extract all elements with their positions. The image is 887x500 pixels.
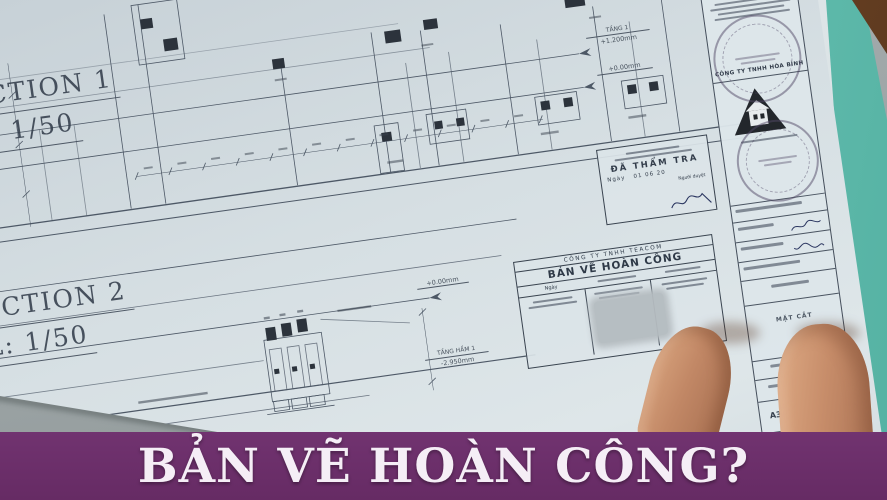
signature-icon <box>791 237 826 255</box>
caption-banner: BẢN VẼ HOÀN CÔNG? <box>0 432 887 500</box>
verification-stamp: ĐÃ THẨM TRA Ngày 01 06 20 Người duyệt <box>596 134 717 225</box>
title-block-col1 <box>519 289 594 364</box>
signature-icon <box>668 187 714 213</box>
caption-text: BẢN VẼ HOÀN CÔNG? <box>138 439 749 494</box>
strip-row <box>742 276 839 307</box>
thumbnail-photo: SECTION 1 TL: 1/50 SECTION 2 TL: 1/50 TẦ… <box>0 0 887 500</box>
stamp-text-bar <box>764 160 792 166</box>
title-block-col2 <box>585 280 660 355</box>
text-bar <box>597 275 637 283</box>
text-bar <box>664 266 700 274</box>
text-bar <box>741 242 784 250</box>
text-bar <box>771 280 809 288</box>
text-bar <box>738 223 774 230</box>
strip-header: CÔNG TY TNHH HÒA BÌNH <box>701 0 808 84</box>
signature-icon <box>788 217 823 235</box>
